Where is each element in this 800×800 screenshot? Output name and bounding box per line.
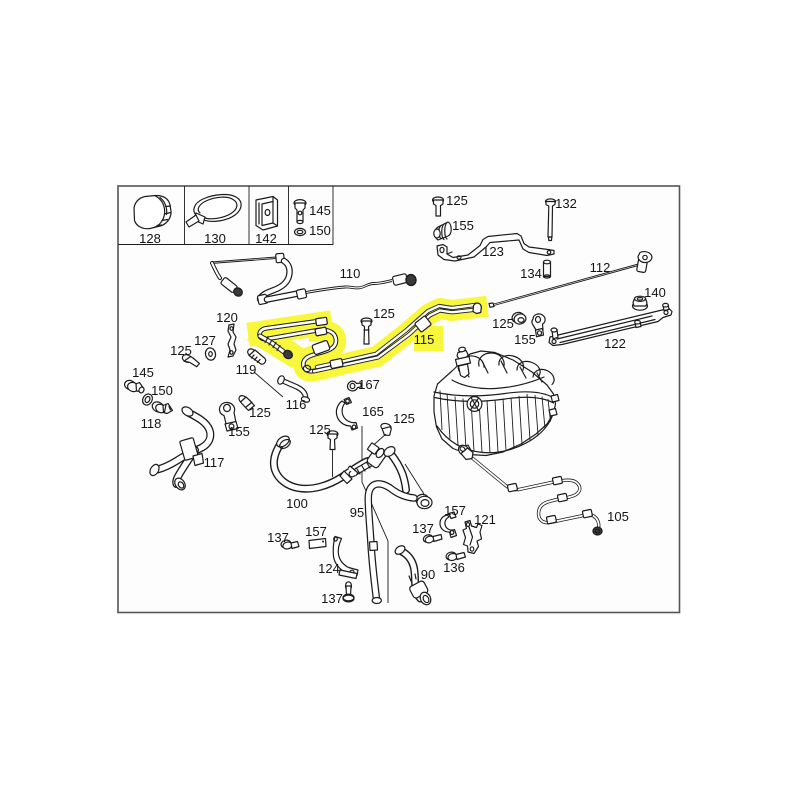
svg-text:145: 145	[309, 203, 331, 218]
svg-text:112: 112	[590, 260, 611, 275]
svg-text:125: 125	[249, 405, 271, 420]
svg-text:121: 121	[474, 512, 496, 527]
svg-text:157: 157	[305, 524, 327, 539]
svg-text:137: 137	[412, 521, 434, 536]
svg-text:123: 123	[482, 244, 504, 259]
svg-text:137: 137	[321, 591, 343, 606]
svg-text:150: 150	[151, 383, 173, 398]
svg-text:128: 128	[139, 231, 161, 246]
svg-text:130: 130	[204, 231, 226, 246]
svg-text:95: 95	[350, 505, 364, 520]
svg-text:90: 90	[421, 567, 435, 582]
svg-text:117: 117	[204, 455, 225, 470]
svg-text:100: 100	[286, 496, 308, 511]
svg-text:136: 136	[443, 560, 465, 575]
svg-text:150: 150	[309, 223, 331, 238]
svg-text:155: 155	[514, 332, 536, 347]
svg-text:118: 118	[141, 416, 162, 431]
svg-text:140: 140	[644, 285, 666, 300]
svg-text:145: 145	[132, 365, 154, 380]
svg-text:125: 125	[170, 343, 192, 358]
svg-text:127: 127	[194, 333, 216, 348]
svg-text:125: 125	[309, 422, 331, 437]
svg-text:105: 105	[607, 509, 629, 524]
svg-text:132: 132	[555, 196, 577, 211]
svg-text:155: 155	[228, 424, 250, 439]
svg-text:124: 124	[318, 561, 340, 576]
svg-text:157: 157	[444, 503, 466, 518]
svg-text:167: 167	[358, 377, 380, 392]
svg-text:155: 155	[452, 218, 474, 233]
svg-text:165: 165	[362, 404, 384, 419]
svg-text:125: 125	[446, 193, 468, 208]
svg-text:116: 116	[286, 397, 307, 412]
svg-text:137: 137	[267, 530, 289, 545]
svg-text:125: 125	[373, 306, 395, 321]
svg-text:120: 120	[216, 310, 238, 325]
svg-text:115: 115	[414, 332, 435, 347]
svg-text:110: 110	[340, 266, 361, 281]
svg-text:134: 134	[520, 266, 542, 281]
svg-text:125: 125	[393, 411, 415, 426]
svg-text:119: 119	[236, 362, 257, 377]
svg-text:122: 122	[604, 336, 626, 351]
svg-text:125: 125	[492, 316, 514, 331]
svg-text:142: 142	[255, 231, 277, 246]
